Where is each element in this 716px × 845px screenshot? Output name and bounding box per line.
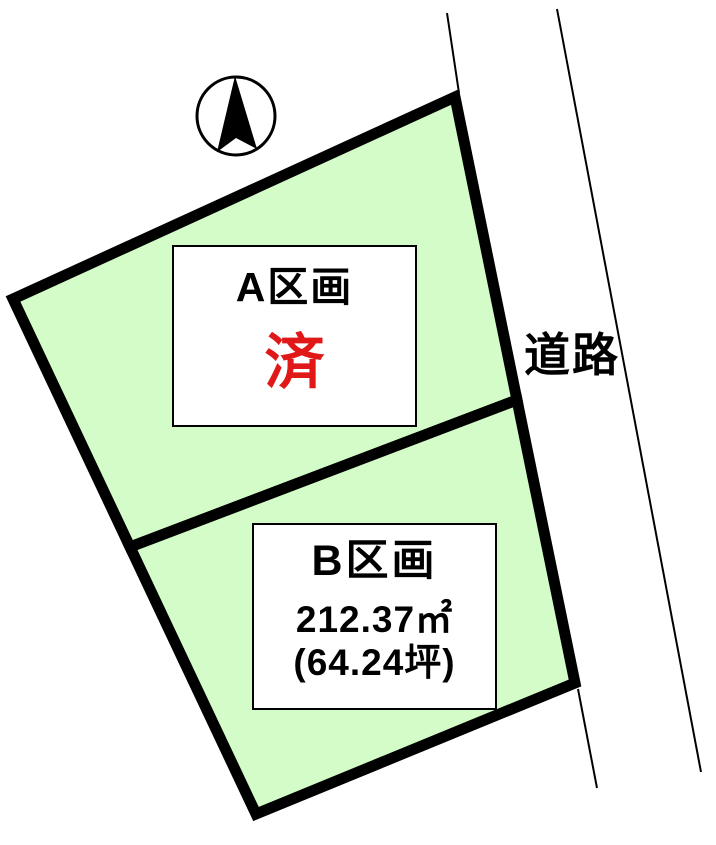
road-label: 道路	[524, 330, 620, 380]
parcel-b-title: B区画	[254, 537, 495, 585]
parcel-b-area-sqm: 212.37㎡	[254, 600, 495, 640]
north-arrow-icon	[197, 76, 275, 155]
road-far-edge-line	[557, 9, 701, 772]
site-plan: A区画 済 B区画 212.37㎡ (64.24坪) 道路	[0, 0, 716, 845]
parcel-b-area-tsubo: (64.24坪)	[254, 643, 495, 683]
parcel-a-status-sold: 済	[174, 331, 415, 395]
parcel-b-label-box: B区画 212.37㎡ (64.24坪)	[252, 523, 497, 710]
road-near-edge-upper-line	[447, 13, 459, 93]
road-near-edge-lower-line	[578, 689, 597, 788]
parcel-a-label-box: A区画 済	[172, 245, 417, 427]
parcel-a-title: A区画	[174, 264, 415, 310]
